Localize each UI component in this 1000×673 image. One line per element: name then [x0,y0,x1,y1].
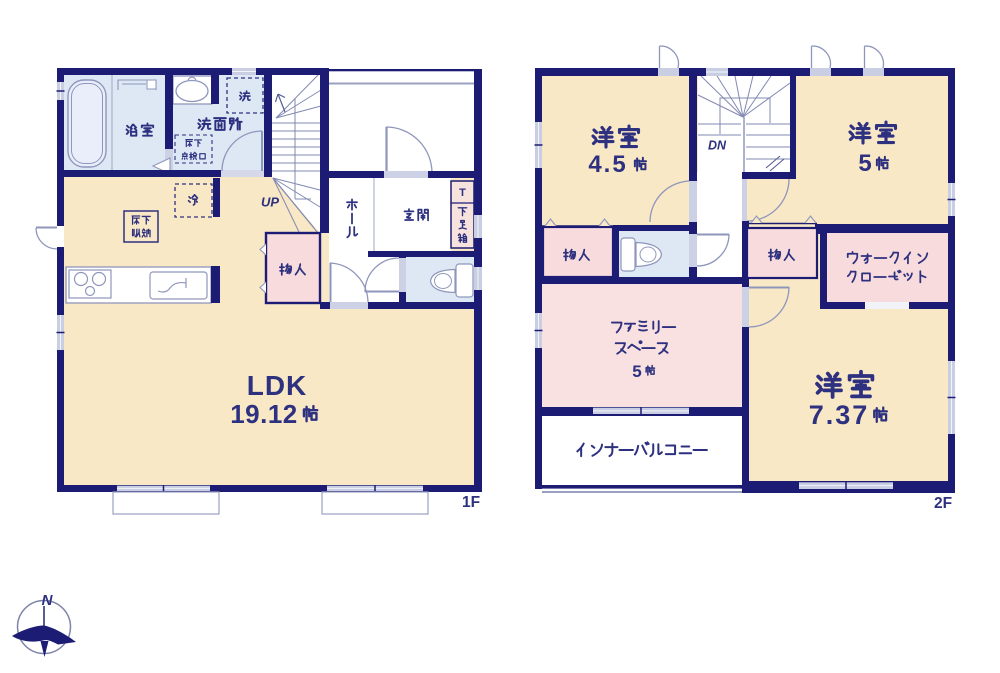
svg-text:LDK: LDK [247,370,308,401]
svg-text:5: 5 [858,150,871,177]
svg-text:DN: DN [708,139,727,153]
svg-text:4.5: 4.5 [588,151,627,178]
svg-text:19.12: 19.12 [230,399,298,429]
svg-text:UP: UP [261,195,279,210]
svg-text:1F: 1F [462,494,480,511]
svg-text:7.37: 7.37 [809,400,870,430]
svg-text:2F: 2F [934,495,952,512]
svg-text:5: 5 [632,362,641,381]
svg-text:T: T [459,187,466,199]
